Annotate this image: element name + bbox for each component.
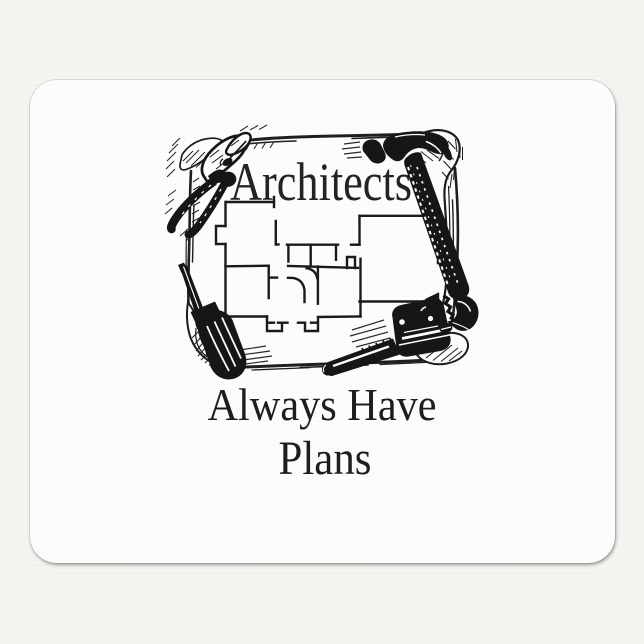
svg-text:Always Have: Always Have — [208, 379, 437, 430]
svg-text:Architects: Architects — [230, 152, 412, 212]
svg-text:Plans: Plans — [279, 432, 372, 485]
